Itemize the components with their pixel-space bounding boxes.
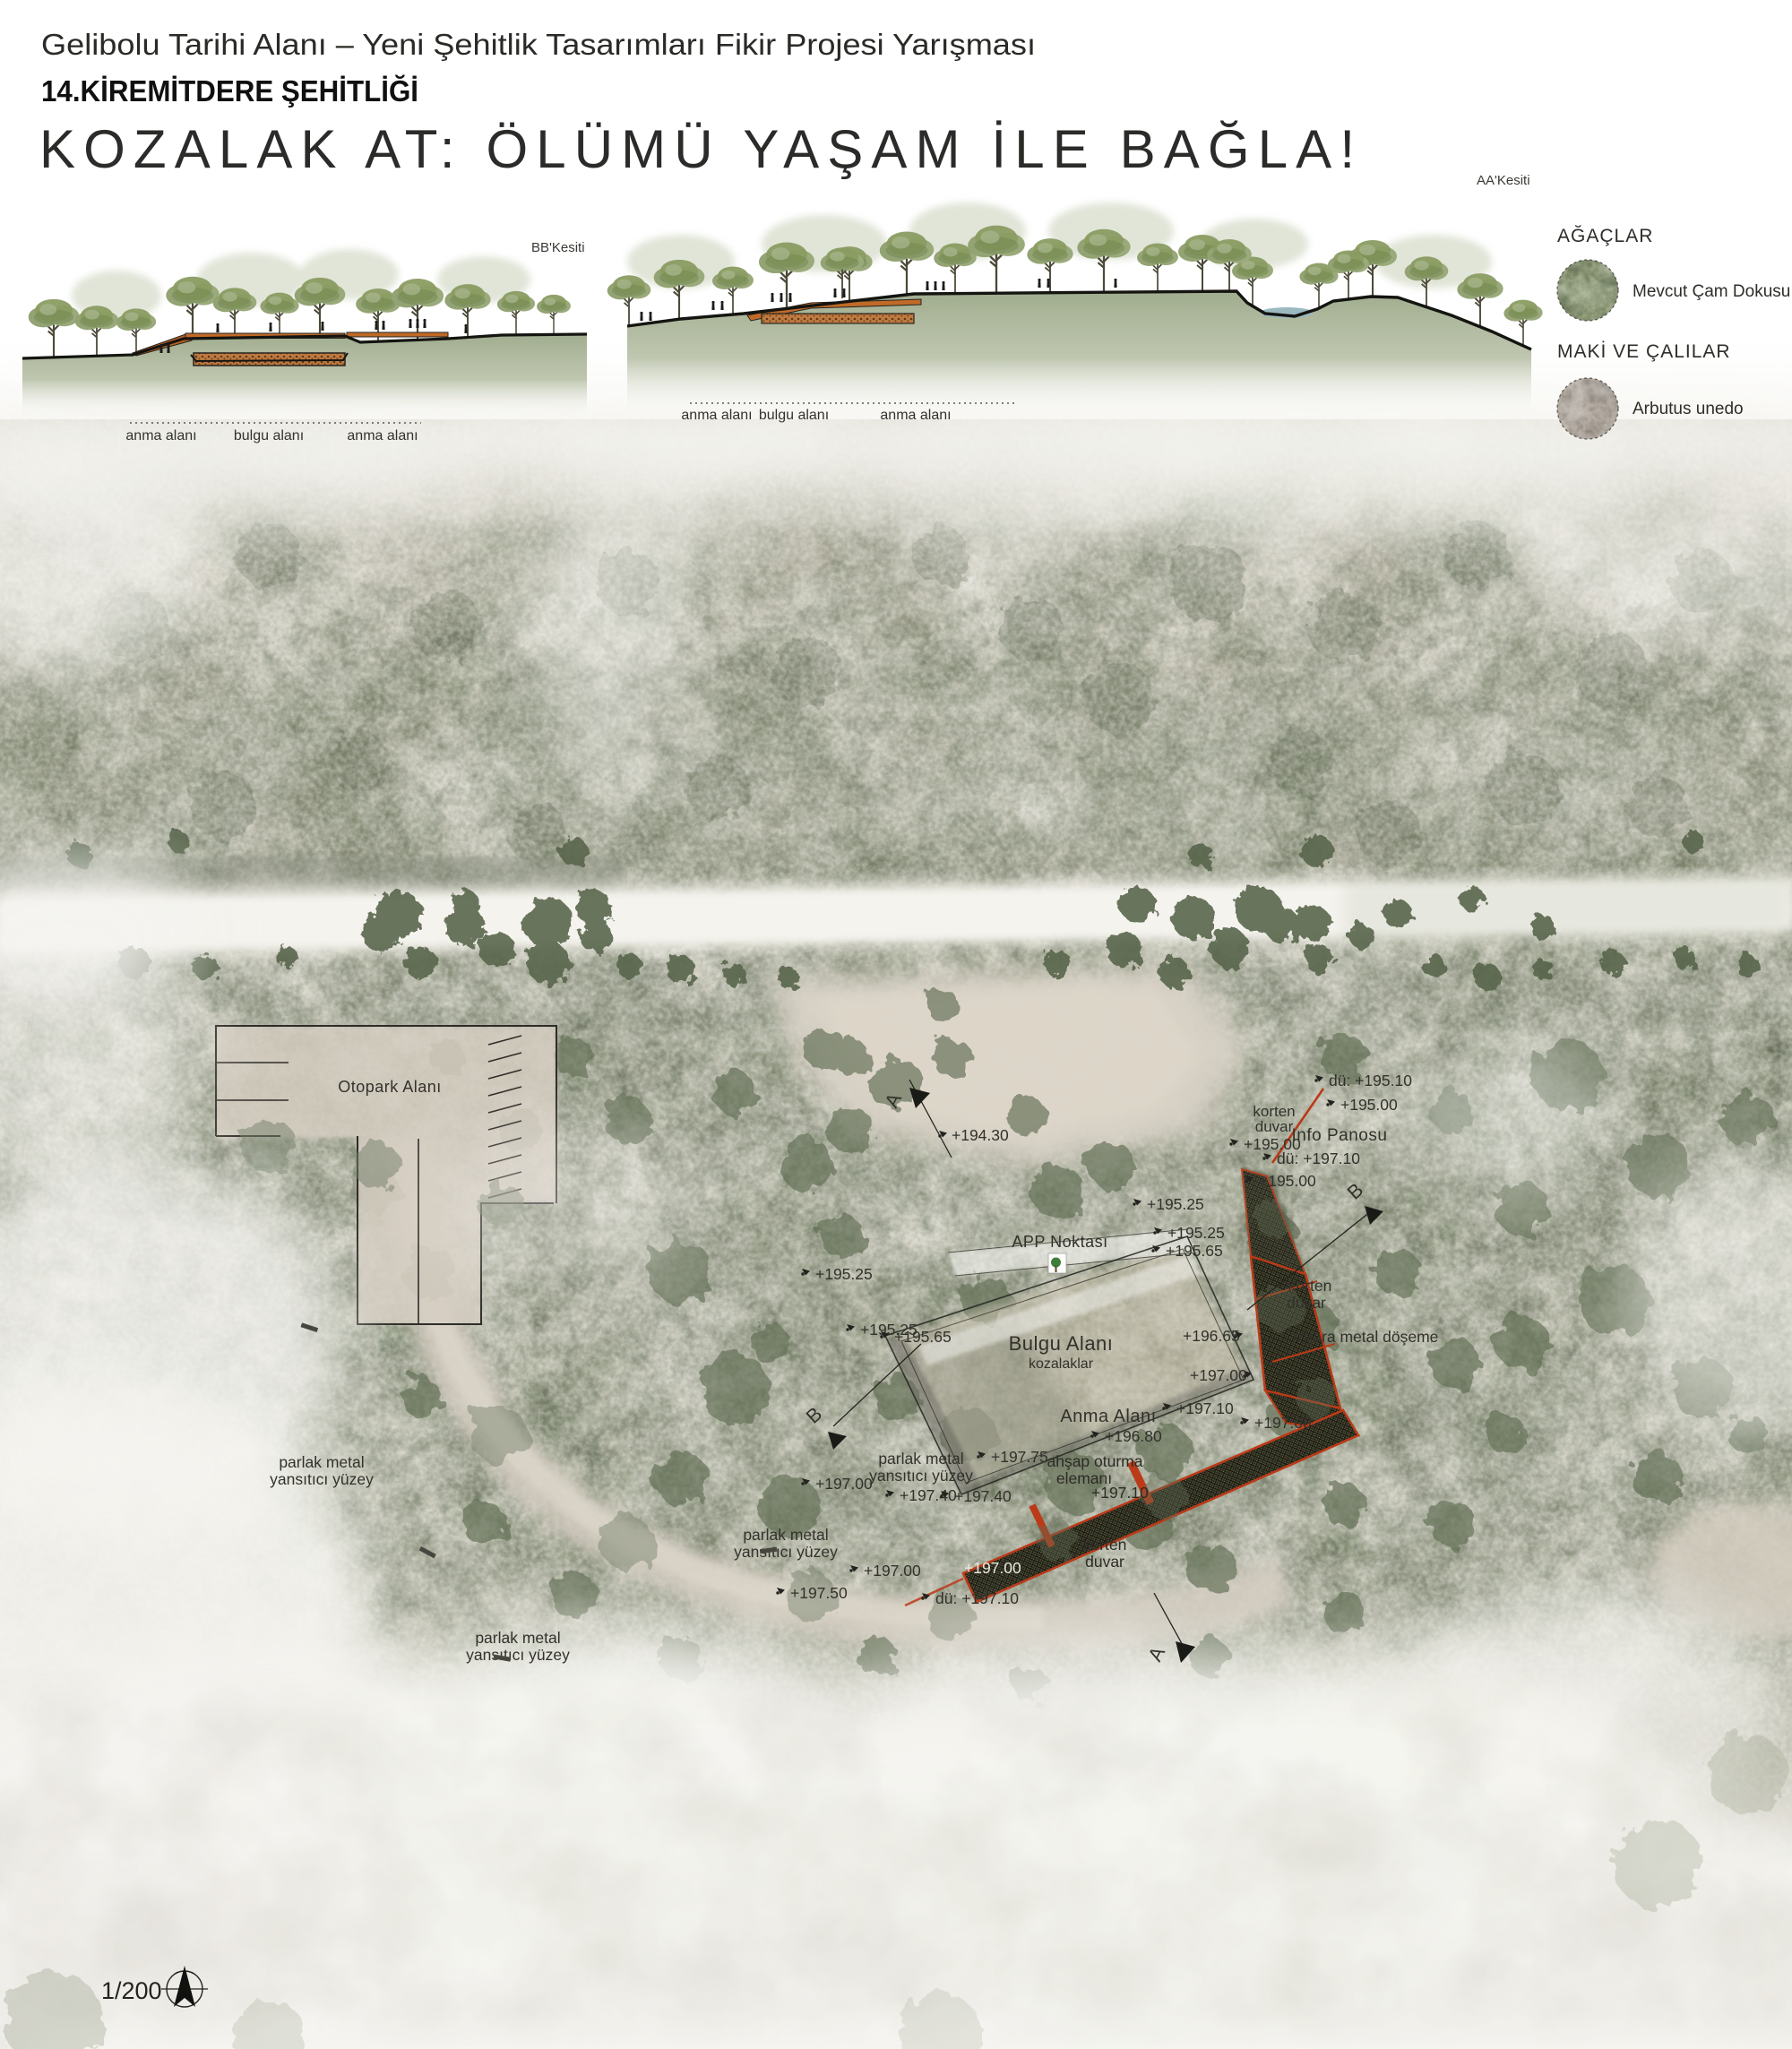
svg-text:BB'Kesiti: BB'Kesiti [531, 240, 585, 255]
svg-text:korten: korten [1083, 1536, 1127, 1554]
svg-text:+197.40: +197.40 [954, 1487, 1012, 1505]
svg-text:kozalaklar: kozalaklar [1029, 1356, 1094, 1372]
svg-text:parlak metal: parlak metal [475, 1629, 560, 1647]
svg-text:+197.75: +197.75 [991, 1448, 1048, 1466]
svg-text:+196.80: +196.80 [1105, 1427, 1162, 1445]
svg-text:yansıtıcı yüzey: yansıtıcı yüzey [869, 1467, 973, 1485]
svg-text:14.KİREMİTDERE ŞEHİTLİĞİ: 14.KİREMİTDERE ŞEHİTLİĞİ [41, 74, 418, 108]
svg-text:+195.25: +195.25 [1167, 1224, 1225, 1242]
svg-text:+197.00: +197.00 [815, 1475, 873, 1493]
svg-text:Bulgu Alanı: Bulgu Alanı [1009, 1332, 1114, 1355]
svg-text:anma alanı: anma alanı [125, 428, 196, 443]
svg-text:+197.00: +197.00 [964, 1559, 1021, 1577]
svg-text:Mevcut Çam Dokusu: Mevcut Çam Dokusu [1633, 282, 1790, 301]
svg-text:+195.00: +195.00 [1340, 1096, 1398, 1114]
svg-text:parlak metal: parlak metal [743, 1526, 828, 1544]
svg-text:anma alanı: anma alanı [347, 428, 418, 443]
svg-text:+197.10: +197.10 [1176, 1399, 1234, 1417]
svg-text:+194.30: +194.30 [952, 1126, 1009, 1144]
svg-text:parlak metal: parlak metal [279, 1453, 364, 1471]
svg-text:+197.10: +197.10 [1091, 1484, 1149, 1502]
svg-text:duvar: duvar [1287, 1294, 1326, 1312]
svg-text:yansıtıcı yüzey: yansıtıcı yüzey [270, 1470, 374, 1488]
svg-text:ızgara metal döşeme: ızgara metal döşeme [1292, 1328, 1438, 1346]
svg-text:MAKİ VE ÇALILAR: MAKİ VE ÇALILAR [1557, 341, 1731, 362]
svg-text:duvar: duvar [1255, 1118, 1294, 1135]
svg-text:dü: +197.10: dü: +197.10 [1277, 1149, 1360, 1167]
svg-text:anma alanı: anma alanı [880, 408, 951, 423]
svg-text:+195.25: +195.25 [1147, 1195, 1204, 1213]
svg-text:yansıtıcı yüzey: yansıtıcı yüzey [734, 1543, 838, 1561]
svg-text:+197.00: +197.00 [1190, 1366, 1247, 1384]
svg-text:1/200: 1/200 [101, 1977, 162, 2004]
svg-text:Gelibolu Tarihi Alanı – Yeni Ş: Gelibolu Tarihi Alanı – Yeni Şehitlik Ta… [41, 28, 1036, 61]
svg-text:+197.50: +197.50 [790, 1584, 848, 1602]
svg-text:yansıtıcı yüzey: yansıtıcı yüzey [466, 1646, 570, 1664]
svg-text:+197.00: +197.00 [1254, 1414, 1312, 1432]
svg-text:APP Noktası: APP Noktası [1012, 1233, 1107, 1251]
svg-text:Info Panosu: Info Panosu [1292, 1126, 1388, 1145]
svg-text:AĞAÇLAR: AĞAÇLAR [1557, 226, 1653, 246]
svg-text:+195.00: +195.00 [1259, 1172, 1316, 1190]
svg-text:bulgu alanı: bulgu alanı [759, 408, 829, 423]
svg-text:anma alanı: anma alanı [681, 408, 752, 423]
svg-text:bulgu alanı: bulgu alanı [234, 428, 304, 443]
svg-text:korten: korten [1288, 1277, 1332, 1295]
svg-text:+197.40: +197.40 [900, 1486, 957, 1504]
svg-text:+196.65: +196.65 [1183, 1327, 1240, 1345]
svg-text:Arbutus unedo: Arbutus unedo [1633, 400, 1744, 418]
svg-text:parlak metal: parlak metal [878, 1450, 963, 1468]
svg-text:Otopark Alanı: Otopark Alanı [338, 1078, 442, 1096]
svg-text:+197.00: +197.00 [864, 1562, 921, 1580]
svg-text:+195.65: +195.65 [1166, 1242, 1223, 1260]
svg-text:Anma Alanı: Anma Alanı [1060, 1407, 1156, 1426]
svg-text:AA'Kesiti: AA'Kesiti [1477, 173, 1530, 188]
svg-text:+195.65: +195.65 [894, 1328, 952, 1346]
svg-text:+195.25: +195.25 [815, 1265, 873, 1283]
svg-text:duvar: duvar [1085, 1553, 1124, 1571]
svg-text:dü: +195.10: dü: +195.10 [1329, 1072, 1412, 1089]
svg-text:dü: +197.10: dü: +197.10 [935, 1589, 1019, 1607]
svg-text:ahşap oturma: ahşap oturma [1047, 1452, 1142, 1470]
